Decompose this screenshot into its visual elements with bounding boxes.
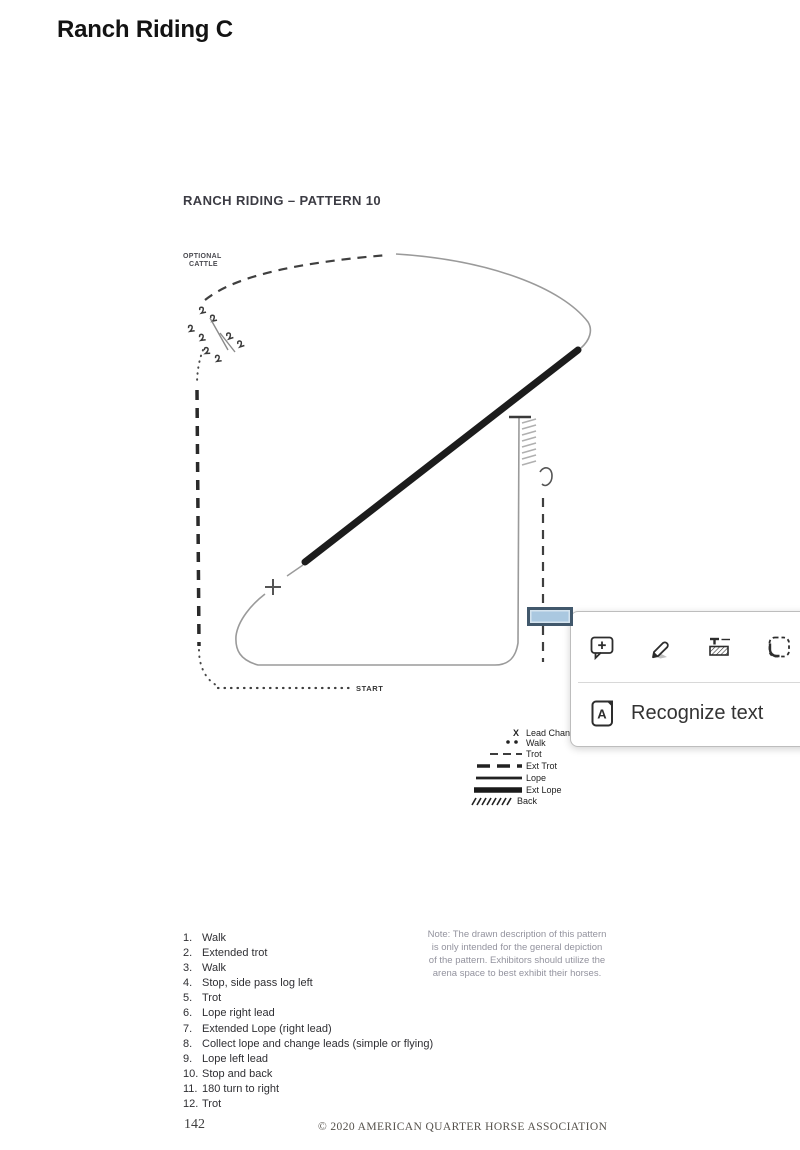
svg-text:OPTIONAL: OPTIONAL: [183, 253, 222, 260]
recognize-text-label: Recognize text: [631, 702, 763, 725]
redact-text-button[interactable]: [706, 633, 734, 661]
walk-dots-corner: [199, 650, 216, 685]
instruction-row: 12.Trot: [183, 1097, 523, 1112]
recognize-text-item[interactable]: A Recognize text: [571, 683, 800, 728]
marquee-select-icon: [765, 633, 793, 661]
pattern-note: Note: The drawn description of this patt…: [427, 928, 607, 980]
svg-text:Walk: Walk: [526, 738, 546, 748]
redact-text-icon: [706, 633, 734, 661]
legend-back-hatch: [472, 798, 511, 805]
svg-text:CATTLE: CATTLE: [189, 261, 218, 268]
instruction-row: 7.Extended Lope (right lead): [183, 1022, 523, 1037]
toolbar-icon-row: [571, 612, 800, 661]
svg-text:Ext Lope: Ext Lope: [526, 785, 562, 795]
legend-lead-change-x: X: [513, 728, 519, 738]
lead-change-marker: [265, 579, 281, 595]
recognize-text-icon: A: [589, 699, 616, 728]
pencil-icon: [647, 633, 675, 661]
cattle-symbols: [188, 306, 244, 362]
svg-text:Back: Back: [517, 796, 538, 806]
pattern-diagram: OPTIONAL CATTLE: [170, 188, 630, 822]
lope-connector: [287, 565, 303, 576]
start-label: START: [356, 684, 383, 693]
back-hatches: [522, 419, 536, 465]
page-title: Ranch Riding C: [57, 16, 233, 44]
instruction-row: 5.Trot: [183, 991, 523, 1006]
annotation-toolbar-popup: A Recognize text: [570, 611, 800, 747]
legend-walk-dot: [514, 740, 518, 744]
comment-plus-icon: [588, 633, 616, 661]
instruction-row: 11.180 turn to right: [183, 1082, 523, 1097]
add-comment-button[interactable]: [588, 633, 616, 661]
svg-text:Ext Trot: Ext Trot: [526, 761, 558, 771]
svg-text:A: A: [597, 707, 607, 722]
trot-path-top: [205, 255, 388, 300]
ext-lope-diagonal: [305, 350, 578, 562]
page-number: 142: [184, 1117, 205, 1133]
copyright-line: © 2020 AMERICAN QUARTER HORSE ASSOCIATIO…: [318, 1121, 607, 1133]
lope-path-bottom: [236, 418, 519, 665]
optional-cattle-label: OPTIONAL CATTLE: [183, 253, 222, 268]
instruction-row: 6.Lope right lead: [183, 1006, 523, 1021]
instruction-row: 9.Lope left lead: [183, 1052, 523, 1067]
pencil-annotate-button[interactable]: [647, 633, 675, 661]
ext-trot-left: [197, 390, 199, 646]
svg-text:Trot: Trot: [526, 749, 542, 759]
legend-walk-dot: [506, 740, 510, 744]
select-region-button[interactable]: [765, 633, 793, 661]
selected-annotation-highlight[interactable]: [527, 607, 573, 626]
svg-text:Lope: Lope: [526, 773, 546, 783]
pattern-legend: X Lead Change Walk Trot Ext Trot Lope Ex…: [472, 728, 580, 806]
instruction-row: 10.Stop and back: [183, 1067, 523, 1082]
lope-path-right: [396, 254, 590, 348]
side-pass-log: [210, 318, 235, 352]
turn-180-hook: [540, 468, 552, 486]
instruction-row: 8.Collect lope and change leads (simple …: [183, 1037, 523, 1052]
walk-dots-top: [197, 350, 203, 385]
